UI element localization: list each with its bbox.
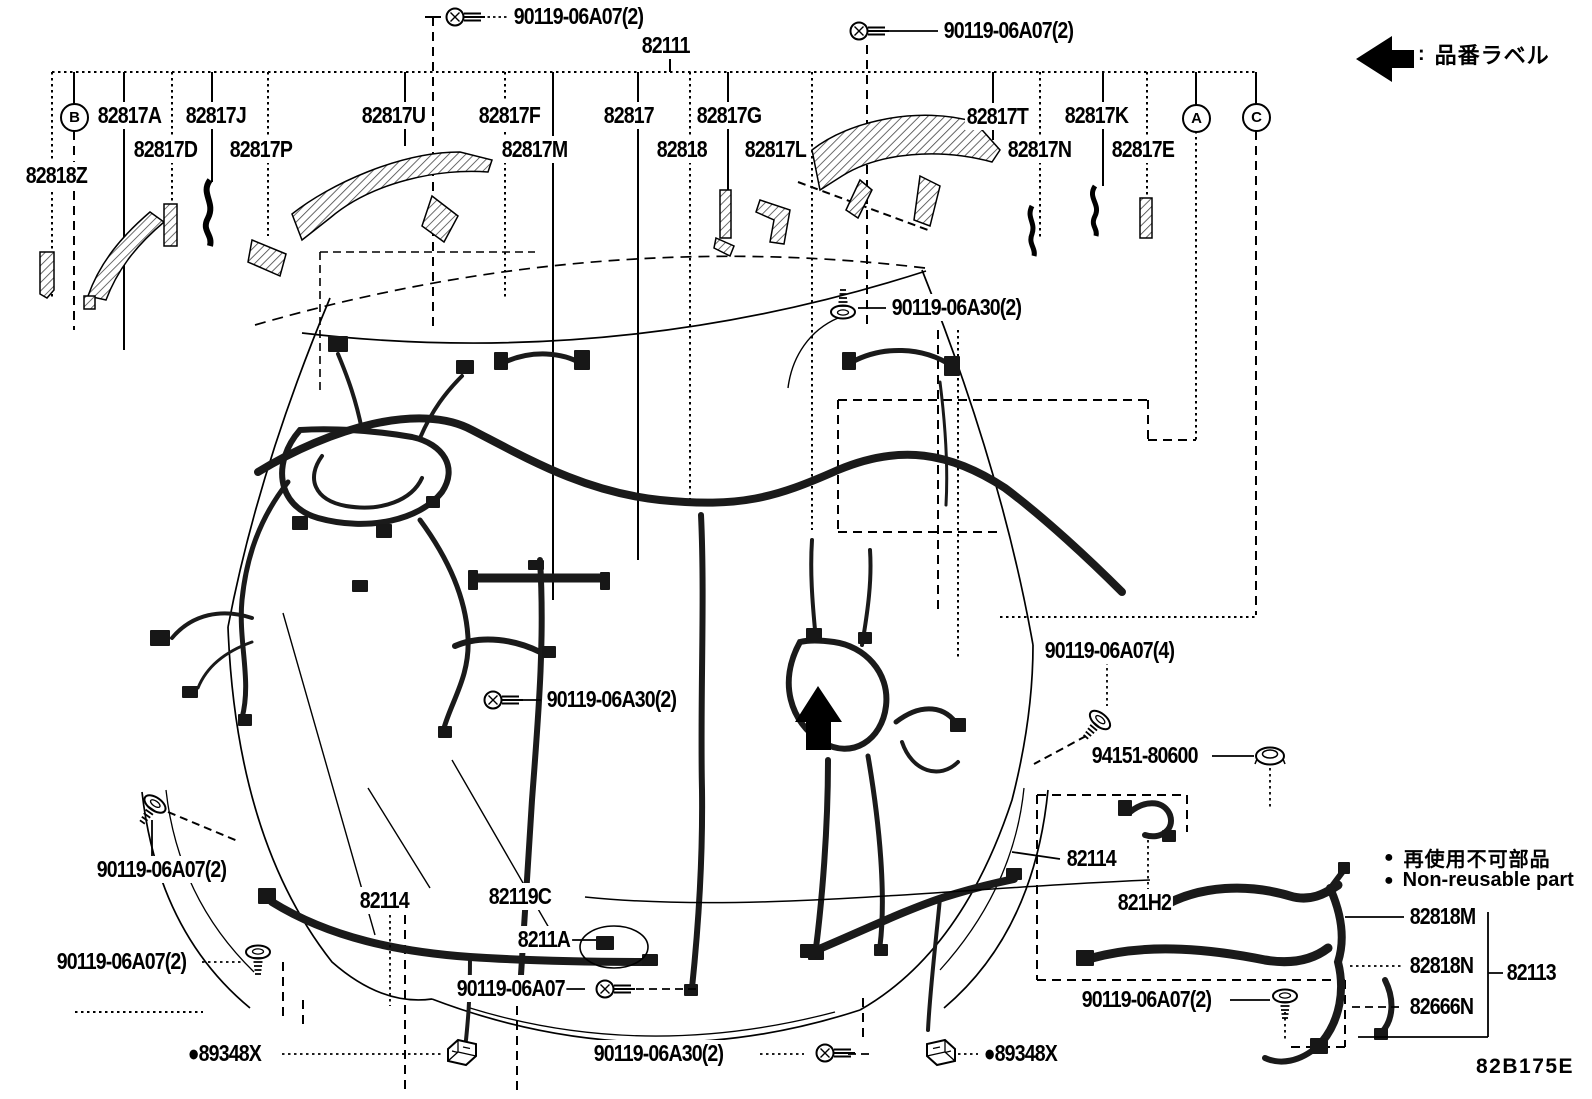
legend-nonreusable-en-text: Non-reusable part <box>1403 869 1574 892</box>
fasteners <box>133 9 1297 1066</box>
part-label-arrow-icon <box>795 686 842 750</box>
harness-artwork <box>172 350 1391 1061</box>
diagram-artwork <box>0 0 1592 1099</box>
bullet-icon: ● <box>1384 850 1395 866</box>
reference-lines <box>52 17 1257 660</box>
bullet-icon: ● <box>1384 873 1394 889</box>
car-outline <box>142 270 1048 1042</box>
legend-colon: : <box>1418 43 1425 66</box>
legend-nonreusable-en: ● Non-reusable part <box>1384 869 1574 892</box>
part-glyphs <box>40 115 1152 309</box>
legend-nonreusable-jp: ● 再使用不可部品 <box>1384 843 1551 872</box>
legend-label: 品番ラベル <box>1435 38 1550 70</box>
diagram-canvas: : 品番ラベル ● 再使用不可部品 ● Non-reusable part 82… <box>0 0 1592 1099</box>
legend-nonreusable-jp-text: 再使用不可部品 <box>1404 843 1551 872</box>
diagram-code: 82B175E <box>1476 1055 1574 1079</box>
legend-part-number-label: : 品番ラベル <box>1352 38 1550 70</box>
